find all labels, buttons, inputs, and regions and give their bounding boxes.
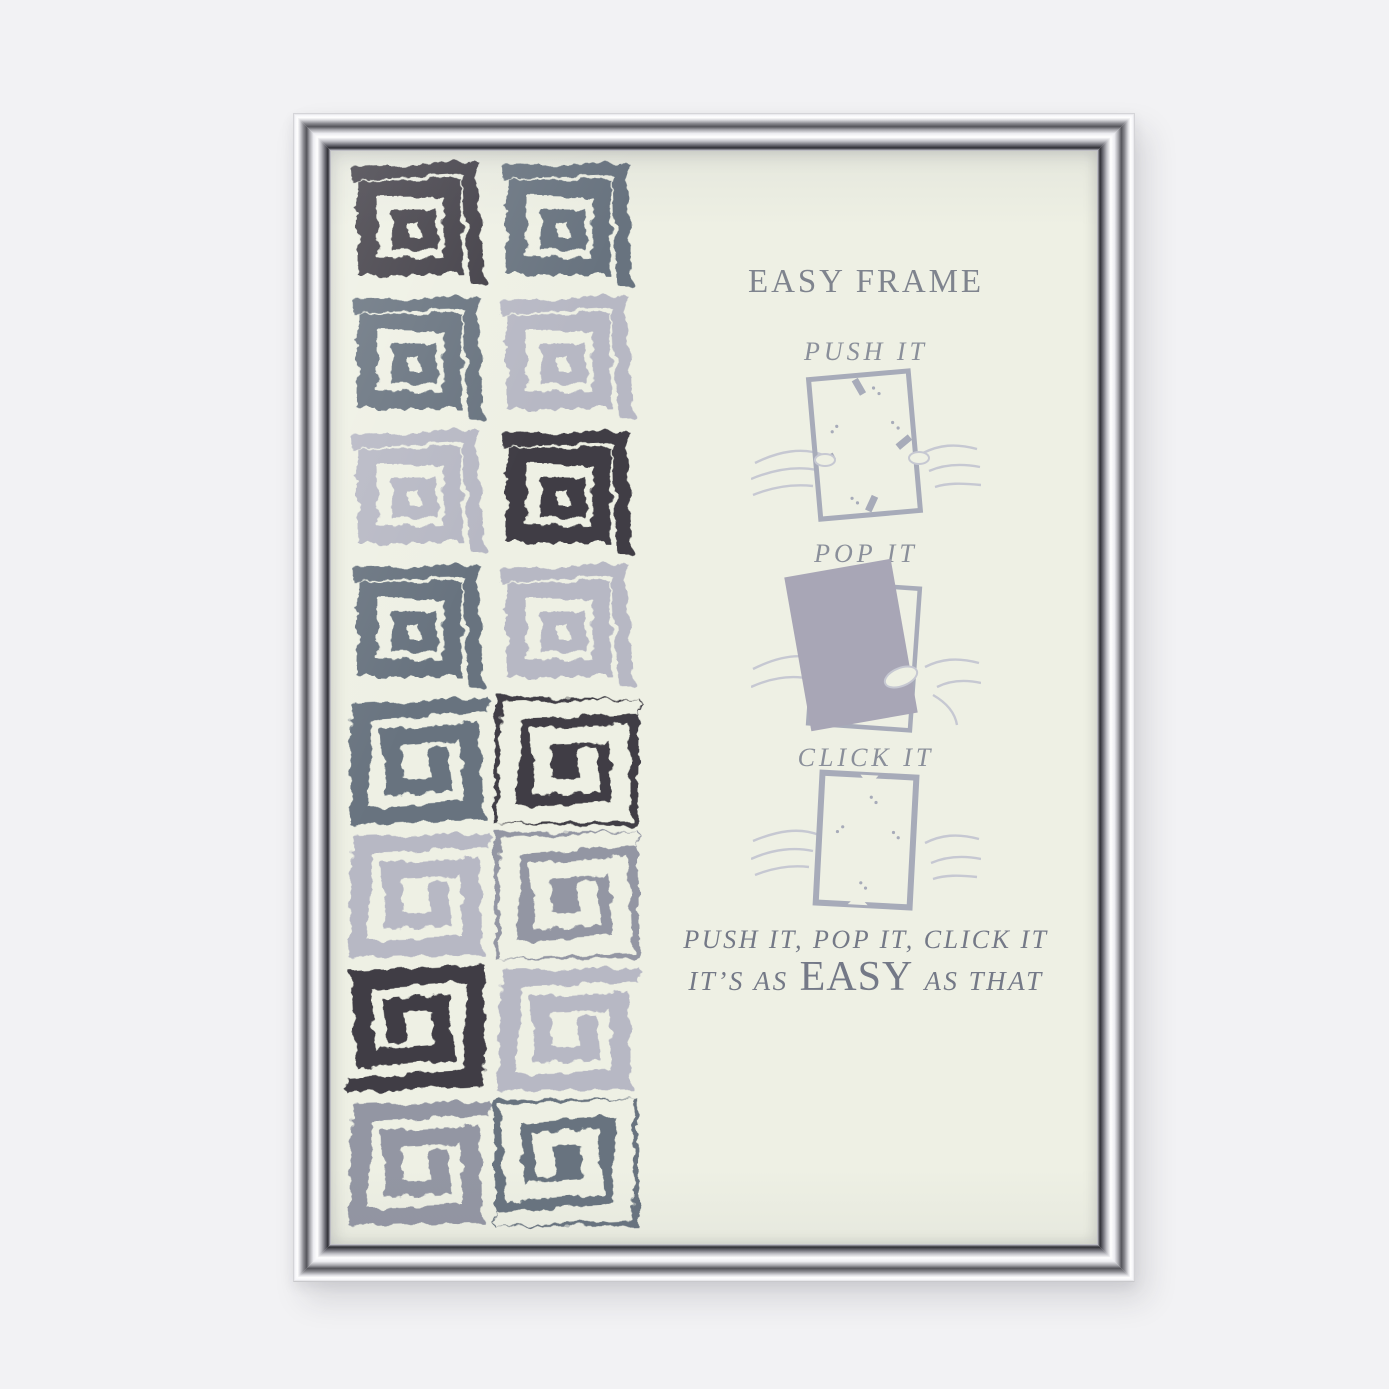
click-it-illustration bbox=[631, 769, 1101, 919]
pattern-motif-spiral-dark bbox=[343, 963, 492, 1097]
push-it-illustration bbox=[631, 363, 1101, 533]
picture-frame: EASY FRAME PUSH IT bbox=[293, 113, 1135, 1282]
pattern-motif-squares-dark bbox=[343, 159, 492, 293]
pop-it-illustration bbox=[631, 559, 1101, 747]
footer-slogan-line2: IT’S AS EASY AS THAT bbox=[631, 953, 1101, 1001]
frame-edge-right bbox=[1097, 113, 1135, 1282]
pattern-motif-spiral-gray bbox=[343, 1097, 492, 1231]
pattern-motif-squares-light bbox=[343, 427, 492, 561]
pattern-motif-spiral-slate bbox=[343, 695, 492, 829]
frame-edge-bottom bbox=[293, 1244, 1135, 1282]
pattern-motif-squares-slate bbox=[343, 561, 492, 695]
pattern-motif-spiral-light bbox=[492, 963, 641, 1097]
footer-line2-prefix: IT’S AS bbox=[688, 966, 788, 997]
frame-edge-top bbox=[293, 113, 1135, 151]
instructions-column: EASY FRAME PUSH IT bbox=[631, 151, 1101, 1244]
pattern-motif-squares-light bbox=[492, 293, 641, 427]
footer-line2-suffix: AS THAT bbox=[924, 966, 1043, 997]
pattern-motif-squares-slate bbox=[343, 293, 492, 427]
pattern-motif-squares-dark bbox=[492, 427, 641, 561]
pattern-motif-spiral-slate bbox=[492, 1097, 641, 1231]
insert-sheet: EASY FRAME PUSH IT bbox=[331, 151, 1097, 1244]
pattern-motif-spiral-gray bbox=[492, 829, 641, 963]
pattern-motif-spiral-dark bbox=[492, 695, 641, 829]
pattern-motif-squares-light bbox=[492, 561, 641, 695]
product-photo: EASY FRAME PUSH IT bbox=[0, 0, 1389, 1389]
footer-line2-emphasis: EASY bbox=[800, 953, 914, 1001]
pattern-motif-spiral-light bbox=[343, 829, 492, 963]
product-title: EASY FRAME bbox=[638, 263, 1094, 301]
footer-slogan-line1: PUSH IT, POP IT, CLICK IT bbox=[631, 925, 1101, 955]
pattern-motif-squares-slate bbox=[492, 159, 641, 293]
pattern-grid bbox=[343, 159, 641, 1231]
frame-edge-left bbox=[293, 113, 331, 1282]
